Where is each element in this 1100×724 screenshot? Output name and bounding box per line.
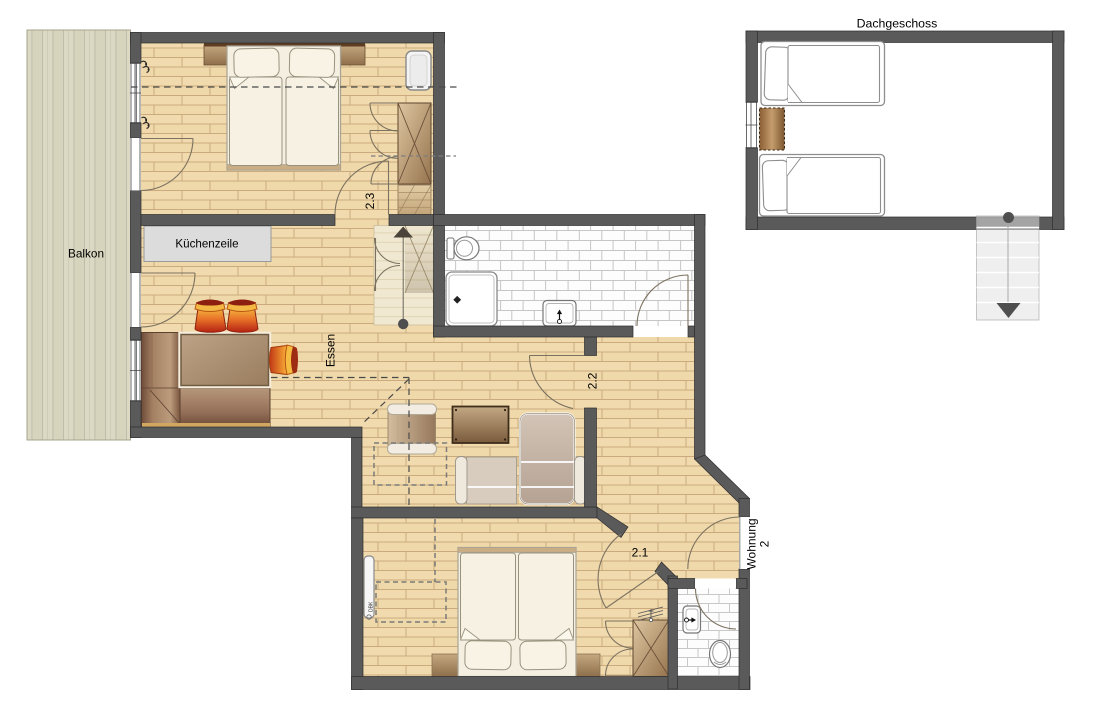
svg-text:2.3: 2.3 [363, 192, 377, 209]
svg-text:Dachgeschoss: Dachgeschoss [857, 17, 938, 31]
svg-text:Küchenzeile: Küchenzeile [175, 238, 238, 251]
svg-text:Balkon: Balkon [68, 247, 104, 261]
svg-text:2.1: 2.1 [632, 546, 649, 560]
svg-text:Essen: Essen [324, 334, 338, 367]
svg-text:Wohnung: Wohnung [745, 518, 759, 569]
svg-text:DBK: DBK [369, 601, 375, 612]
svg-text:2: 2 [758, 540, 772, 547]
svg-text:2.2: 2.2 [586, 372, 600, 389]
